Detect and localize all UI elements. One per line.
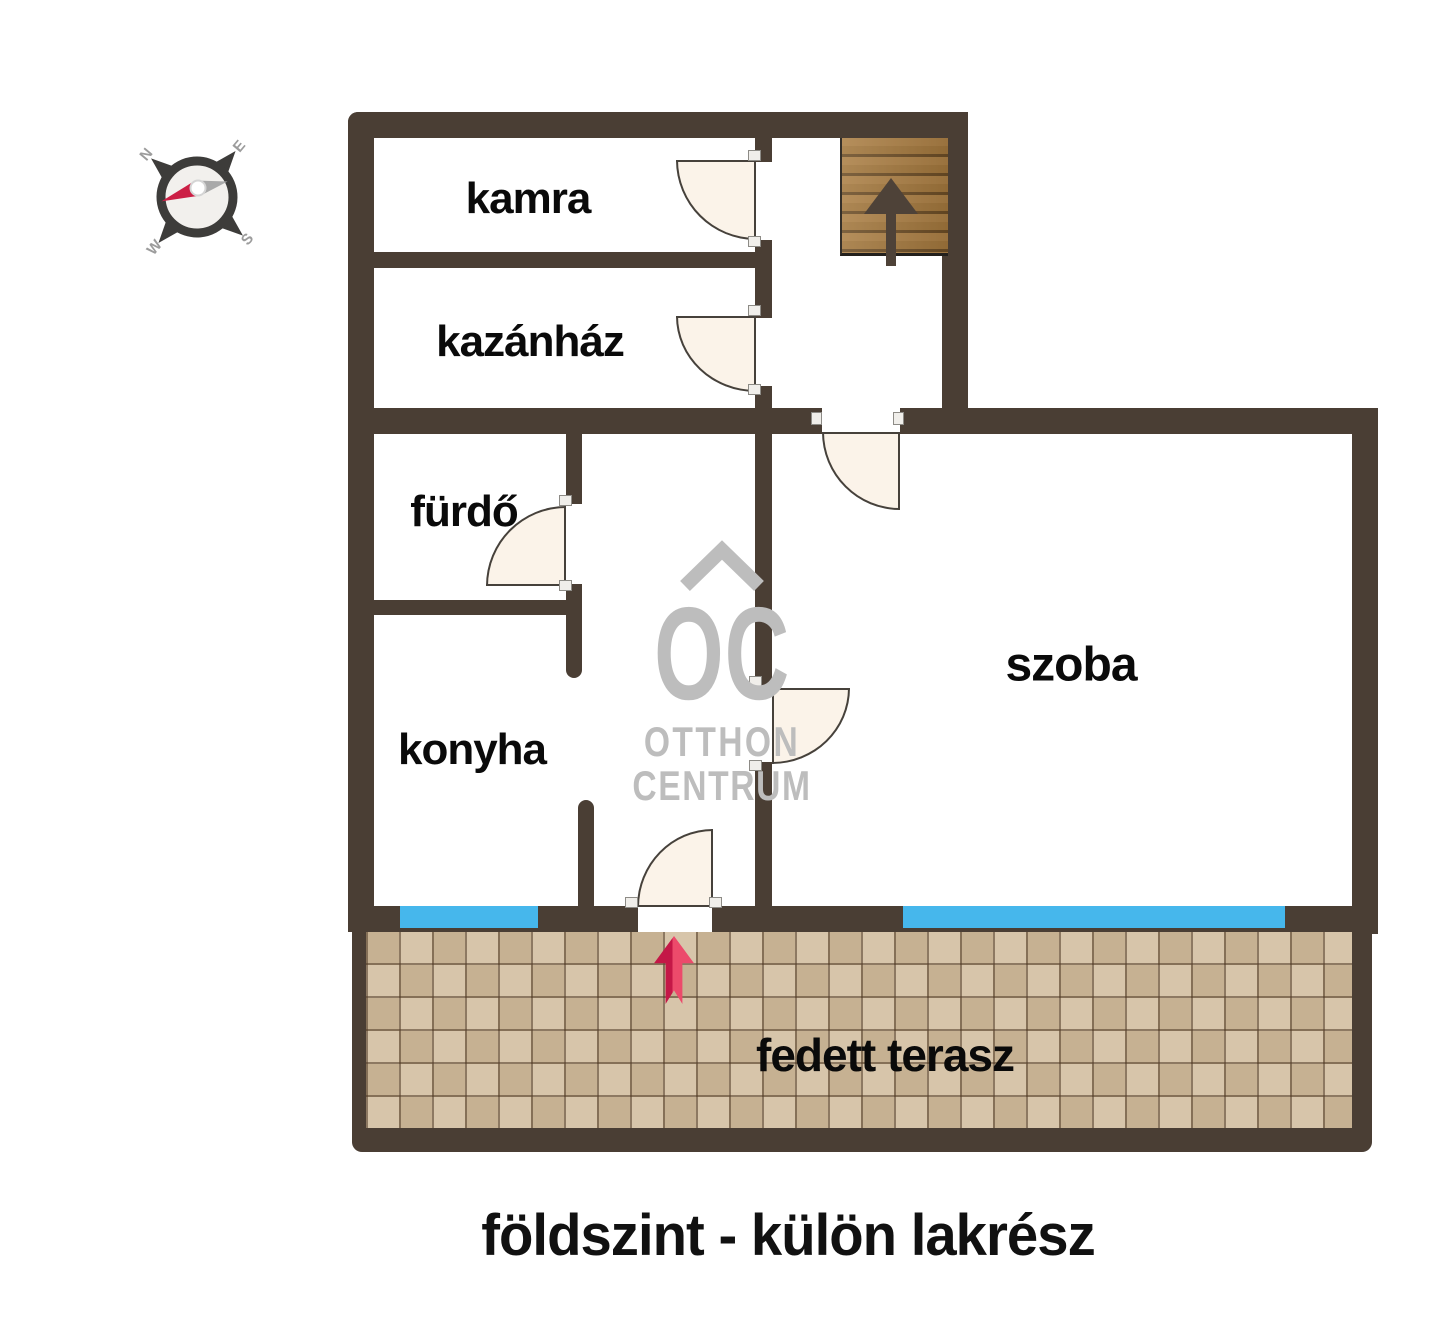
hinge-furdo-bottom: [559, 580, 572, 591]
wall-left: [348, 112, 374, 934]
hinge-kamra-top: [748, 150, 761, 161]
wall-mid-band-left: [374, 408, 822, 434]
door-kazanhaz: [676, 316, 756, 392]
compass-rose-icon: N E S W: [117, 117, 277, 277]
hinge-entrance-left: [625, 897, 638, 908]
room-label-terasz: fedett terasz: [756, 1028, 1014, 1082]
hinge-entrance-right: [709, 897, 722, 908]
watermark-line1: OTTHON: [644, 718, 800, 766]
room-label-furdo: fürdő: [410, 487, 517, 537]
wall-terrace-left: [352, 932, 366, 1130]
hinge-furdo-top: [559, 495, 572, 506]
door-entrance: [637, 829, 713, 907]
door-kamra: [676, 160, 756, 240]
window-szoba: [903, 906, 1285, 928]
hinge-kazan-bottom: [748, 384, 761, 395]
room-label-konyha: konyha: [398, 725, 546, 775]
wall-terrace-bottom: [352, 1128, 1372, 1152]
hinge-kazan-top: [748, 305, 761, 316]
wall-furdo-bottom: [374, 600, 568, 615]
watermark-line2: CENTRUM: [632, 762, 811, 810]
room-label-kamra: kamra: [466, 174, 591, 224]
room-label-szoba: szoba: [1005, 638, 1136, 693]
room-label-kazanhaz: kazánház: [436, 317, 624, 367]
wall-terrace-right: [1352, 932, 1372, 1130]
hinge-szobatop-left: [811, 412, 822, 425]
wall-top: [348, 112, 968, 138]
stairs-up-arrow-icon: [886, 208, 896, 266]
compass-s: S: [238, 230, 257, 249]
window-konyha: [400, 906, 538, 928]
floor-plan: N E S W: [0, 0, 1440, 1340]
hinge-szobatop-right: [893, 412, 904, 425]
stairs-up-arrow-head-icon: [864, 178, 918, 214]
wall-szoba-right: [1352, 408, 1378, 934]
wall-konyha-hall: [578, 800, 594, 908]
hinge-kamra-bottom: [748, 236, 761, 247]
watermark-logo: OC: [654, 578, 790, 729]
wall-furdo-right-upper: [566, 432, 582, 504]
wall-kamra-divider: [374, 252, 758, 268]
plan-title: földszint - külön lakrész: [481, 1202, 1094, 1269]
door-szoba-top: [822, 432, 900, 510]
wall-furdo-right-lower: [566, 584, 582, 678]
wall-szoba-top: [900, 408, 1378, 434]
